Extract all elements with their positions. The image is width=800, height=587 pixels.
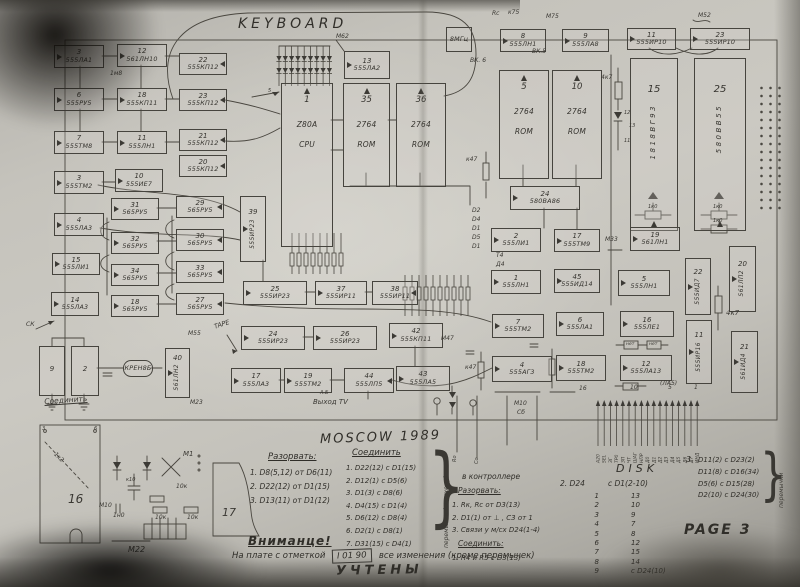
ic-block-22: 22555ИД7 (685, 258, 711, 315)
ic-label: 555ЛН1 (502, 282, 529, 289)
disk-table-row: 715 (585, 548, 666, 557)
annotation-label: 16 (579, 385, 587, 392)
ic-number: 10 (572, 83, 583, 92)
ic-block-16: 16555ЛЕ1 (620, 311, 674, 337)
annotation-label: М33 (605, 236, 618, 243)
ic-label: 555ТМ2 (66, 183, 93, 190)
ic-number: 5 (521, 83, 526, 92)
ic-number: 25 (714, 85, 727, 96)
ic-block-12: 12555ЛА13 (620, 355, 672, 381)
bus-signal-label: Д3 (664, 456, 670, 464)
plate-note-stamp: I 01 90 (332, 548, 372, 563)
note-line: 4. D4(15) с D1(4) (346, 500, 416, 513)
ic-block-7: 7555ТМ8 (54, 131, 104, 154)
disk-table-row: 58 (585, 530, 666, 539)
ic-label: 555ИР23 (330, 338, 360, 345)
controller-razorvat-list: 1. Rк, Rс от D3(13)2. D1(1) от ⊥ , C3 от… (452, 499, 540, 537)
keyboard-title: KEYBOARD (238, 16, 347, 32)
ic-label: 555ЛА1 (66, 57, 93, 64)
note-line: 2. D22(12) от D1(15) (250, 480, 332, 494)
ic-block-10: 102764ROM (552, 70, 602, 179)
annotation-label: D1 (472, 225, 480, 232)
schematic-sheet: А20SELЗГТР0ЗПЧТШАГНПРД0Д1Д2Д3Д4Д5Д6Д7ИНД… (0, 0, 800, 587)
disk-left-header: 2. D24 (560, 479, 585, 488)
ic-label: 555ЛА5 (410, 379, 437, 386)
annotation-label: к47 (465, 364, 476, 371)
annotation-label: D1 (472, 243, 480, 250)
annotation-label: нет (649, 342, 657, 347)
annotation-label: 10к (187, 514, 198, 521)
annotation-label: 1к0 (648, 204, 657, 210)
note-line: 2. D12(1) с D5(6) (346, 475, 416, 488)
annotation-label: нет (626, 342, 634, 347)
ic-label: 561ЛН1 (641, 239, 668, 246)
ic-block-9: 9 (39, 346, 65, 396)
ic-block-18: 18555КП11 (117, 88, 167, 111)
vnimanie-title: Вниманце! (248, 534, 332, 548)
annotation-label: 3 (42, 426, 45, 432)
ic-block-33: 33565РУ5 (176, 261, 224, 283)
ic-block-3: 3555ТМ2 (54, 171, 104, 194)
ic-block-23: 23555КП12 (179, 89, 227, 111)
annotation-label: М1 (183, 450, 194, 458)
ic-block-11: 11555ИР16 (686, 320, 712, 384)
ic-block-19: 19561ЛН1 (630, 227, 680, 251)
ic-number: 1 (304, 96, 309, 105)
annotation-label: СК (26, 321, 34, 328)
page-label: PAGE 3 (684, 522, 751, 538)
note-line: D2(10) с D24(30) (698, 490, 759, 502)
annotation-label: 4к7 (726, 309, 739, 317)
plate-note: На плате с отметкой I 01 90 все изменени… (232, 549, 535, 563)
annotation-label: D5 (472, 234, 480, 241)
ic-label: 565РУ5 (187, 272, 212, 279)
razorvat-list: 1. D8(5,12) от D6(11)2. D22(12) от D1(15… (250, 466, 332, 508)
ic-block-37: 37555ИР11 (315, 281, 367, 305)
annotation-label: 1м8 (110, 70, 122, 77)
disk-table-row: 39 (585, 511, 666, 520)
ic-label: Z80ACPU (297, 121, 318, 149)
ic-label: 555ТМ2 (505, 326, 532, 333)
bus-signal-label: Д4 (670, 456, 676, 464)
annotation-label: D2 (472, 207, 480, 214)
ic-block-18: 18565РУ5 (111, 295, 159, 317)
ic-block-30: 30565РУ5 (176, 229, 224, 251)
annotation-label: М75 (546, 13, 559, 20)
note-line: D11(8) с D16(34) (698, 467, 759, 479)
ic-label: 555ТМ8 (66, 143, 93, 150)
ic-block-17: 17555ТМ9 (554, 229, 600, 252)
ic-label: 555ЛА3 (66, 225, 93, 232)
ic-number: 39 (249, 209, 258, 216)
ic-label: 555ЛА13 (631, 368, 662, 375)
ic-block-25: 25555ИР23 (243, 281, 307, 305)
annotation-label: М10 (99, 502, 112, 509)
ic-block-5: 5555ЛН1 (618, 270, 670, 296)
soedinit-list: 1. D22(12) с D1(15)2. D12(1) с D5(6)3. D… (346, 462, 416, 550)
ic-block-6: 6555ЛА1 (556, 312, 604, 336)
disk-table-row: 814 (585, 558, 666, 567)
ic-block-35: 352764ROM (343, 83, 390, 187)
ic-number: 35 (361, 96, 372, 105)
note-line: 3. Связи у м/сх D24(1-4) (452, 524, 540, 537)
note-line: 1. D22(12) с D1(15) (346, 462, 416, 475)
ic-block-11: 11555ИР10 (627, 28, 676, 50)
ic-label: 555ЛН1 (509, 41, 536, 48)
ic-label: 2764ROM (411, 121, 431, 149)
ic-label: 2764ROM (514, 108, 534, 136)
annotation-label: 5 (668, 384, 672, 391)
ic-block-31: 31565РУ5 (111, 198, 159, 220)
ic-label: 580ВА86 (530, 198, 561, 205)
ic-block: 8МГц (446, 27, 472, 52)
annotation-label: М62 (336, 33, 349, 40)
ic-label: 555ТМ2 (568, 368, 595, 375)
ic-label: 555ЛИ1 (62, 264, 89, 271)
ic-block-34: 34565РУ5 (111, 264, 159, 286)
note-line: 1. Rк, Rс от D3(13) (452, 499, 540, 512)
annotation-label: 1к0 (713, 218, 722, 224)
ic-block-26: 26555ИР23 (313, 326, 377, 350)
bus-signal-label: ЗГ (608, 457, 614, 463)
ic-block-10: 10555ИЕ7 (115, 169, 163, 192)
ic-label: 555КП12 (187, 166, 218, 173)
ic-block-24: 24580ВА86 (510, 186, 580, 210)
ic-label: 555ИД14 (561, 281, 593, 288)
annotation-label: 13 (629, 123, 635, 129)
ic-label: 565РУ5 (122, 243, 147, 250)
plate-note-suffix: все изменения (кроме перемычек) (379, 551, 535, 561)
ic-number: 22 (694, 269, 703, 276)
annotation-label: 10 (630, 384, 638, 391)
disk-header: DISK (616, 462, 658, 475)
ic-number: 2 (83, 366, 87, 373)
ic-label: 555ЛА8 (572, 41, 599, 48)
disk-table-row: 113 (585, 492, 666, 501)
ic-label: 555ИД7 (695, 278, 701, 305)
ic-label: 555КП12 (187, 64, 218, 71)
ic-block-20: 20555КП12 (179, 155, 227, 177)
disk-table-row: 210 (585, 501, 666, 510)
ic-block-12: 12561ЛН10 (117, 44, 167, 67)
plate-note-prefix: На плате с отметкой (232, 551, 325, 561)
ic-label: 555ЛИ1 (502, 240, 529, 247)
ic-label: 555ИР16 (696, 342, 702, 372)
ic-number: 11 (695, 332, 704, 339)
note-line: D11(2) с D23(2) (698, 455, 759, 467)
ic-label: 555КП12 (187, 140, 218, 147)
annotation-label: 4к7 (601, 74, 612, 81)
controller-razorvat-title: Разорвать: (458, 486, 501, 495)
bus-signal-label: Д2 (658, 456, 664, 464)
annotation-label: 11 (624, 138, 630, 144)
connector-dots-grid (757, 84, 783, 214)
ic-block-11: 11555ЛН1 (117, 131, 167, 154)
annotation-label: 1н0 (113, 512, 125, 519)
ic-block-21: 21555КП12 (179, 129, 227, 151)
ic-block-21: 21561ИД4 (731, 331, 758, 393)
controller-heading: в контроллере (462, 472, 520, 481)
annotation-label: 1 (694, 384, 698, 391)
annotation-label: Выход TV (313, 398, 348, 406)
ic-block-2: 2 (71, 346, 99, 396)
jumpers-list: D11(2) с D23(2)D11(8) с D16(34)D5(6) с D… (698, 455, 759, 502)
ic-block-36: 362764ROM (396, 83, 446, 187)
ic-label: 2764ROM (357, 121, 377, 149)
ic-label: 2764ROM (567, 108, 587, 136)
ic-label: 561ЛП2 (739, 270, 745, 296)
ic-block-38: 38555ИР11 (372, 281, 418, 305)
ic-label: 555ИР10 (705, 39, 735, 46)
ic-block-6: 6555РУ5 (54, 88, 104, 111)
ic-block-23: 23555ИР10 (690, 28, 750, 50)
bus-signal-label: SEL (602, 454, 608, 463)
ic-label: 565РУ5 (122, 306, 147, 313)
disk-table-row: 612 (585, 539, 666, 548)
ic-block-7: 7555ТМ2 (492, 314, 544, 338)
ic-block-4: 4555АГ3 (492, 356, 552, 382)
ic-block-3: 3555ЛА1 (54, 45, 104, 68)
ic-number: 20 (738, 261, 747, 268)
razorvat-title: Разорвать: (268, 452, 317, 462)
note-line: D5(6) с D15(28) (698, 479, 759, 491)
disk-table-row: 47 (585, 520, 666, 529)
ic-block-45: 45555ИД14 (554, 269, 600, 293)
disk-table-row: 9с D24(10) (585, 567, 666, 576)
note-line: 1. D8(5,12) от D6(11) (250, 466, 332, 480)
annotation-label: к10 (126, 477, 135, 483)
annotation-label: М55 (188, 330, 201, 337)
ic-number: 9 (50, 366, 54, 373)
ic-label: 555ЛА3 (62, 304, 89, 311)
annotation-label: А.Б (320, 390, 328, 396)
bus-signal-label: Д5 (676, 456, 682, 464)
annotation-label: М22 (128, 545, 145, 554)
ic-block: КРЕН8Б (123, 360, 153, 377)
ic-label: 555ИР11 (326, 293, 356, 300)
annotation-label: Сб (517, 409, 525, 416)
ic-label: 555ТМ9 (564, 241, 591, 248)
ic-block-14: 14555ЛА3 (51, 292, 99, 316)
ic-label: 555ЛП5 (355, 381, 382, 388)
annotation-label: 12 (624, 110, 630, 116)
annotation-label: М23 (190, 399, 203, 406)
ic-label: 555ЛА1 (567, 324, 594, 331)
annotation-label: 17 (222, 506, 236, 519)
ic-label: 555КП11 (126, 100, 157, 107)
ic-label: КРЕН8Б (125, 365, 152, 372)
ic-block-15: 15555ЛИ1 (52, 253, 100, 275)
annotation-label: 6 (94, 426, 97, 432)
ic-label: 1818ВГ93 (650, 104, 657, 159)
jumpers-brace-note: перемычки (778, 458, 785, 508)
ic-label: 561ЛН2 (174, 364, 180, 390)
annotation-label: М10 (514, 400, 527, 407)
annotation-label: 16 (68, 492, 83, 506)
ic-label: 555ЛН1 (128, 143, 155, 150)
ic-label: 561ИД4 (741, 353, 747, 380)
ic-label: 555КП11 (400, 336, 431, 343)
annotation-label: 5 (268, 88, 271, 94)
annotation-label: ВК. 6 (470, 57, 486, 64)
annotation-label: Т4 (496, 252, 503, 259)
annotation-label: Rс (492, 10, 499, 17)
note-line: 3. D13(11) от D1(12) (250, 494, 332, 508)
ic-label: 555ИР10 (636, 39, 666, 46)
ic-label: 555ИР11 (380, 293, 410, 300)
ic-block-13: 13555ЛА2 (344, 51, 390, 79)
jumpers-num: 3. (686, 455, 694, 464)
ic-label: 561ЛН10 (126, 56, 157, 63)
ic-block-32: 32565РУ5 (111, 232, 159, 254)
ic-block-4: 4555ЛА3 (54, 213, 104, 236)
annotation-label: 10к (176, 483, 187, 490)
ic-label: 565РУ5 (187, 240, 212, 247)
annotation-label: 1к0 (713, 204, 722, 210)
ic-number: 15 (648, 85, 661, 96)
note-line: 6. D2(1) с D8(1) (346, 525, 416, 538)
ic-label: 565РУ5 (122, 275, 147, 282)
annotation-label: М52 (698, 12, 711, 19)
ic-block-18: 18555ТМ2 (556, 355, 606, 381)
ic-block-24: 24555ИР23 (241, 326, 305, 350)
ic-block-27: 27565РУ5 (176, 293, 224, 315)
controller-soedinit-title: Соединить: (458, 539, 504, 548)
ic-label: 555ИР23 (260, 293, 290, 300)
note-line: 2. D1(1) от ⊥ , C3 от 1 (452, 512, 540, 525)
soedinit-brace-note: перемычки (см. схему) (443, 462, 450, 548)
ic-block-5: 52764ROM (499, 70, 549, 179)
ic-label: 555ЛА3 (243, 381, 270, 388)
ic-number: 40 (173, 355, 182, 362)
ic-label: 555КП12 (187, 100, 218, 107)
ic-label: 555АГ3 (509, 369, 534, 376)
annotation-label: ВК.5 (532, 48, 546, 55)
note-line: 3. D1(3) с D8(6) (346, 487, 416, 500)
annotation-label: к47 (466, 156, 477, 163)
ic-block-2: 2555ЛИ1 (491, 228, 541, 252)
annotation-label: Д4 (496, 261, 505, 268)
ic-label: 555ТМ2 (295, 381, 322, 388)
annotation-label: к75 (508, 9, 519, 16)
disk-right-header: с D1(2-10) (608, 479, 648, 488)
ic-block-40: 40561ЛН2 (165, 348, 190, 398)
ic-block-42: 42555КП11 (389, 323, 443, 348)
ic-label: 555РУ5 (66, 100, 91, 107)
ic-block-9: 9555ЛА8 (562, 29, 609, 52)
ic-block-1: 1Z80ACPU (281, 83, 333, 247)
disk-table: 1132103947586127158149с D24(10) (585, 492, 666, 577)
ic-block-39: 39555ИР23 (240, 196, 266, 262)
note-line: 5. D6(12) с D8(4) (346, 512, 416, 525)
annotation-label: М47 (441, 335, 454, 342)
ic-block-29: 29565РУ5 (176, 196, 224, 218)
ic-label: 555ЛЕ1 (634, 324, 660, 331)
ic-label: 555ЛН1 (630, 283, 657, 290)
bus-signal-label: А20 (596, 454, 602, 464)
ic-block-43: 43555ЛА5 (396, 366, 450, 391)
annotation-label: D4 (472, 216, 480, 223)
ic-label: 580ВВ55 (716, 104, 723, 153)
ic-label: 565РУ5 (122, 209, 147, 216)
ic-label: 565РУ5 (187, 207, 212, 214)
uchteny-stamp: УЧТЕНЫ (336, 562, 423, 579)
ic-label: 555ИР23 (250, 219, 256, 249)
ic-block-22: 22555КП12 (179, 53, 227, 75)
ic-label: 555ИР23 (258, 338, 288, 345)
ic-label: 555ЛА2 (354, 65, 381, 72)
annotation-label: Со (474, 457, 480, 464)
ic-label: 565РУ5 (187, 304, 212, 311)
ic-number: 21 (740, 344, 749, 351)
ic-block-20: 20561ЛП2 (729, 246, 756, 312)
ic-label: 555ИЕ7 (126, 181, 152, 188)
ic-block-17: 17555ЛА3 (231, 368, 281, 393)
ic-block-1: 1555ЛН1 (491, 270, 541, 294)
ic-label: 8МГц (450, 36, 468, 43)
soedinit-title: Соединить (352, 448, 401, 458)
annotation-label: 10к (155, 514, 166, 521)
ic-block-44: 44555ЛП5 (344, 368, 394, 393)
ic-number: 36 (416, 96, 427, 105)
